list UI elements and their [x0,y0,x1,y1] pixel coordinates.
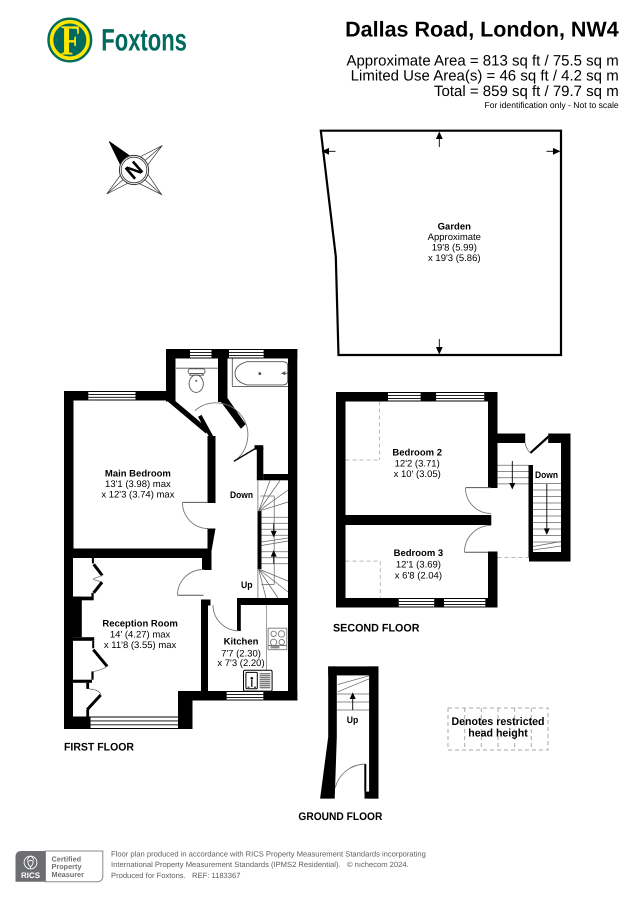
svg-text:FIRST FLOOR: FIRST FLOOR [64,742,134,754]
svg-text:x 6'8 (2.04): x 6'8 (2.04) [395,570,442,581]
svg-text:Dallas Road, London, NW4: Dallas Road, London, NW4 [345,18,619,42]
svg-text:14' (4.27) max: 14' (4.27) max [110,629,171,640]
svg-text:Measurer: Measurer [52,870,85,879]
svg-text:Main Bedroom: Main Bedroom [105,468,171,479]
svg-text:x 12'3 (3.74) max: x 12'3 (3.74) max [101,490,174,501]
svg-text:Up: Up [241,580,253,591]
svg-text:Bedroom 3: Bedroom 3 [394,548,444,559]
svg-text:Down: Down [230,490,253,501]
svg-text:x 10' (3.05): x 10' (3.05) [394,469,441,480]
svg-text:12'1 (3.69): 12'1 (3.69) [396,559,441,570]
svg-text:13'1 (3.98) max: 13'1 (3.98) max [105,479,171,490]
svg-text:Kitchen: Kitchen [224,637,259,648]
svg-text:International Property Measure: International Property Measurement Stand… [111,860,409,869]
svg-text:For identification only - Not: For identification only - Not to scale [484,100,618,110]
svg-text:19'8 (5.99): 19'8 (5.99) [432,243,477,254]
svg-text:GROUND FLOOR: GROUND FLOOR [298,811,382,823]
svg-text:x 19'3 (5.86): x 19'3 (5.86) [428,253,481,264]
svg-text:Foxtons: Foxtons [101,23,187,58]
svg-text:Approximate: Approximate [428,232,481,243]
svg-text:x 7'3 (2.20): x 7'3 (2.20) [217,658,264,669]
svg-text:RICS: RICS [21,871,41,880]
svg-text:Total = 859 sq ft / 79.7 sq m: Total = 859 sq ft / 79.7 sq m [434,83,619,100]
svg-text:Denotes restricted: Denotes restricted [452,716,545,728]
svg-text:x 11'8 (3.55) max: x 11'8 (3.55) max [104,640,177,651]
svg-text:SECOND FLOOR: SECOND FLOOR [333,623,420,635]
svg-text:Floor plan produced in accorda: Floor plan produced in accordance with R… [111,850,426,859]
svg-text:Reception Room: Reception Room [102,619,177,630]
svg-text:head height: head height [468,727,528,739]
svg-text:Bedroom 2: Bedroom 2 [392,448,442,459]
svg-text:Garden: Garden [438,221,471,232]
svg-text:F: F [61,18,80,65]
svg-text:12'2 (3.71): 12'2 (3.71) [395,458,440,469]
svg-text:Down: Down [535,470,558,481]
svg-text:Up: Up [347,715,359,726]
svg-text:Produced for Foxtons. REF: 1: Produced for Foxtons. REF: 1183367 [111,871,240,880]
